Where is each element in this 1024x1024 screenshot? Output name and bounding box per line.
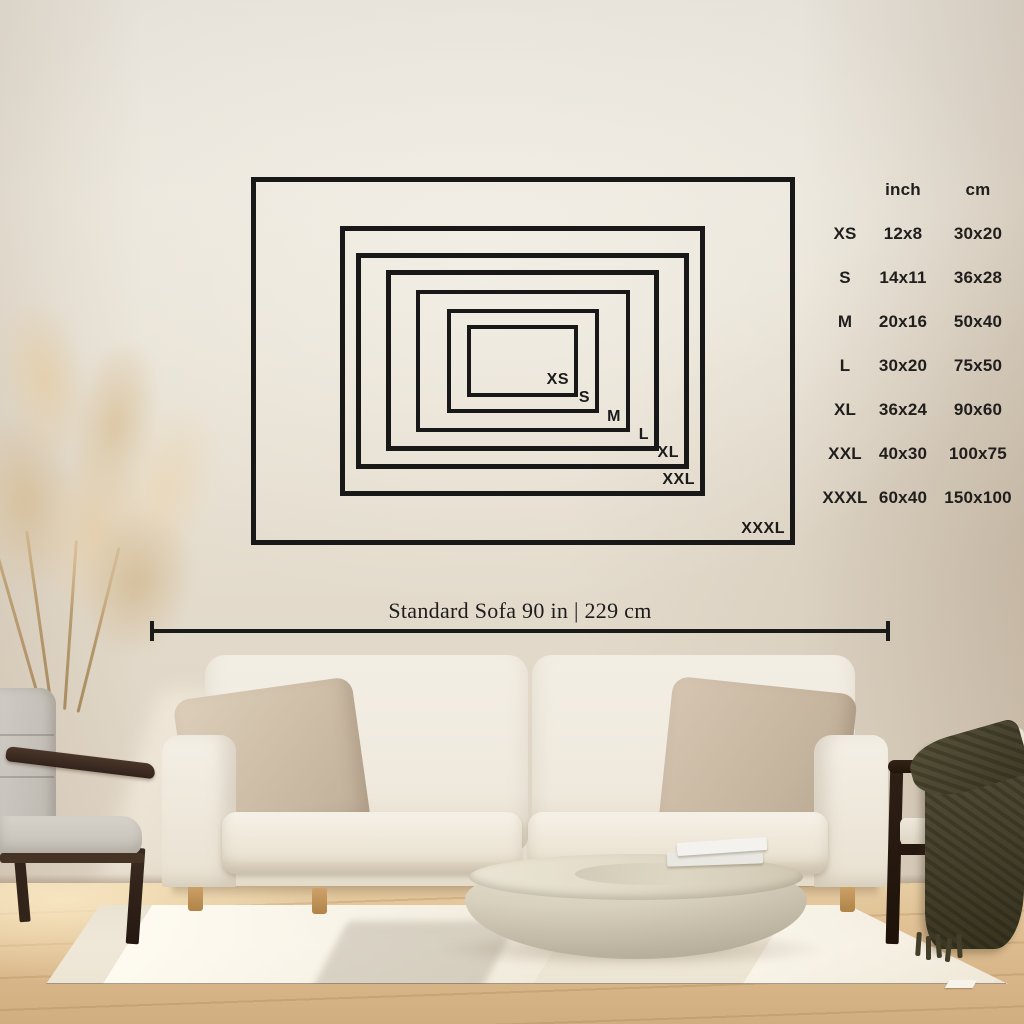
inch-cell: 40x30 xyxy=(870,444,936,464)
size-rect-label: XXXL xyxy=(741,521,785,537)
table-row: XXL 40x30 100x75 xyxy=(820,432,1020,476)
cm-cell: 75x50 xyxy=(936,356,1020,376)
size-table-header-row: inch cm xyxy=(820,168,1020,212)
cm-cell: 36x28 xyxy=(936,268,1020,288)
table-row: L 30x20 75x50 xyxy=(820,344,1020,388)
size-cell: XXXL xyxy=(820,488,870,508)
measure-line xyxy=(150,629,890,633)
size-cell: S xyxy=(820,268,870,288)
cm-cell: 90x60 xyxy=(936,400,1020,420)
table-row: XXXL 60x40 150x100 xyxy=(820,476,1020,520)
size-rect-label: XXL xyxy=(662,472,695,488)
inch-cell: 12x8 xyxy=(870,224,936,244)
sofa-scale-label: Standard Sofa 90 in | 229 cm xyxy=(150,598,890,624)
size-rect-label: S xyxy=(579,390,590,406)
size-guide-overlay: XXXL XXL XL L M S XS inch cm XS xyxy=(0,0,1024,1024)
size-cell: L xyxy=(820,356,870,376)
sofa-width-measurement: Standard Sofa 90 in | 229 cm xyxy=(150,598,890,648)
size-cell: M xyxy=(820,312,870,332)
size-cell: XXL xyxy=(820,444,870,464)
inch-cell: 60x40 xyxy=(870,488,936,508)
inch-cell: 30x20 xyxy=(870,356,936,376)
size-table-header-cm: cm xyxy=(936,180,1020,200)
inch-cell: 20x16 xyxy=(870,312,936,332)
size-rect-label: L xyxy=(639,427,649,443)
size-guide-poster: XXXL XXL XL L M S XS inch cm XS xyxy=(0,0,1024,1024)
table-row: XS 12x8 30x20 xyxy=(820,212,1020,256)
size-cell: XS xyxy=(820,224,870,244)
table-row: S 14x11 36x28 xyxy=(820,256,1020,300)
size-table: inch cm XS 12x8 30x20 S 14x11 36x28 M 20… xyxy=(820,168,1020,520)
size-rect-label: M xyxy=(607,409,621,425)
size-cell: XL xyxy=(820,400,870,420)
cm-cell: 50x40 xyxy=(936,312,1020,332)
inch-cell: 14x11 xyxy=(870,268,936,288)
size-rect-label: XL xyxy=(658,445,679,461)
cm-cell: 30x20 xyxy=(936,224,1020,244)
table-row: M 20x16 50x40 xyxy=(820,300,1020,344)
size-rect-label: XS xyxy=(547,372,569,388)
measure-tick-right xyxy=(886,621,890,641)
size-table-header-inch: inch xyxy=(870,180,936,200)
inch-cell: 36x24 xyxy=(870,400,936,420)
cm-cell: 100x75 xyxy=(936,444,1020,464)
cm-cell: 150x100 xyxy=(936,488,1020,508)
size-rect-xs: XS xyxy=(467,325,578,397)
table-row: XL 36x24 90x60 xyxy=(820,388,1020,432)
